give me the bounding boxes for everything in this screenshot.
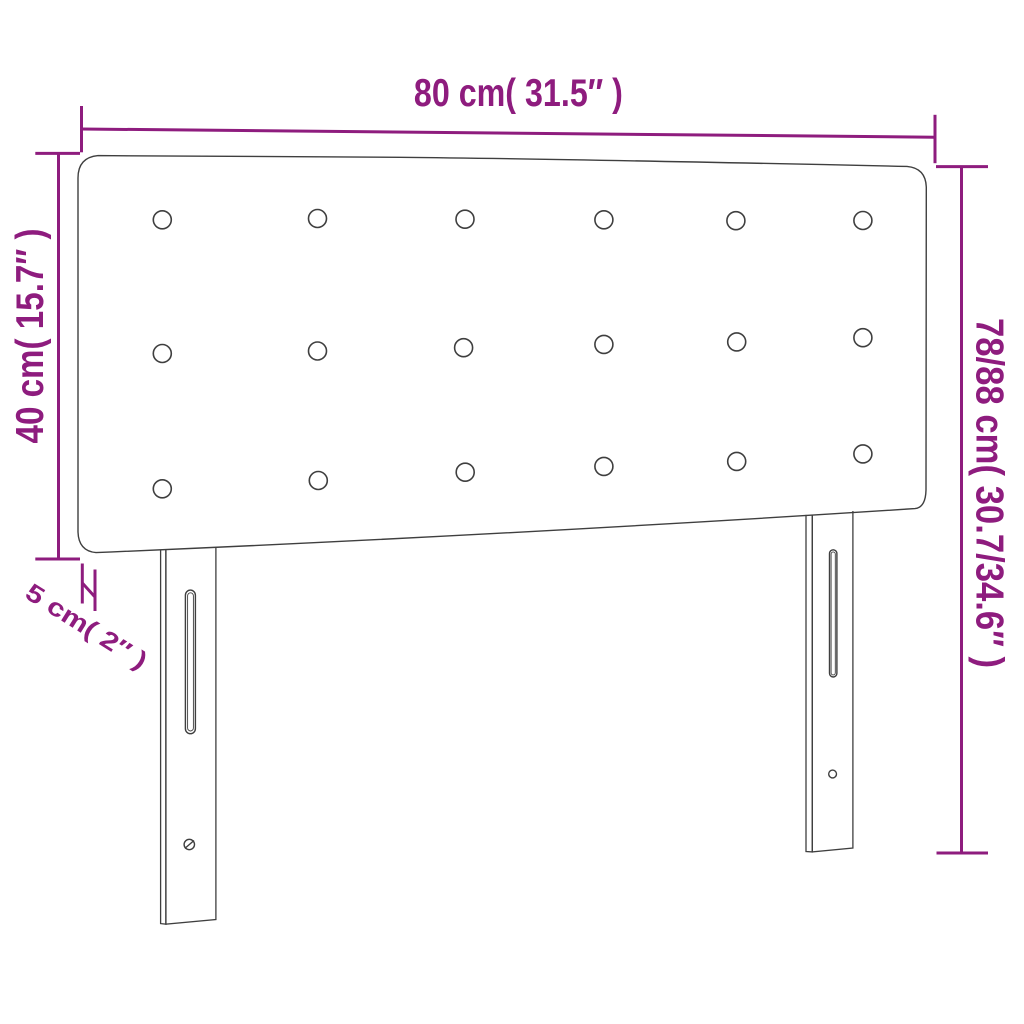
svg-text:80 cm( 31.5″ ): 80 cm( 31.5″ ) — [414, 72, 623, 115]
svg-text:40 cm( 15.7″ ): 40 cm( 15.7″ ) — [9, 229, 52, 444]
svg-text:5 cm( 2″ ): 5 cm( 2″ ) — [20, 578, 152, 675]
svg-text:78/88 cm( 30.7/34.6″ ): 78/88 cm( 30.7/34.6″ ) — [968, 318, 1011, 668]
